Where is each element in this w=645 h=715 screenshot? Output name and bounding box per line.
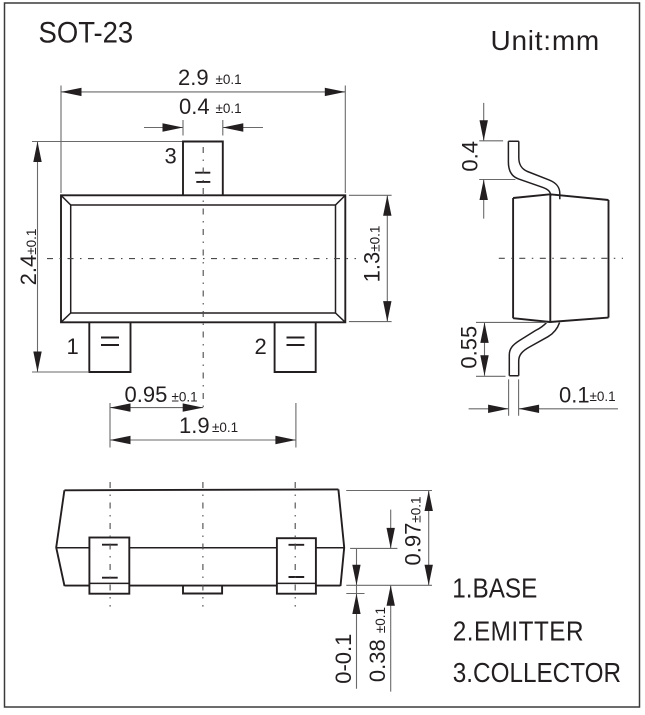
svg-text:0.4: 0.4 xyxy=(179,94,210,119)
svg-text:1: 1 xyxy=(67,334,79,359)
svg-text:3: 3 xyxy=(165,144,177,169)
svg-text:0.95: 0.95 xyxy=(125,382,168,407)
svg-text:1.9: 1.9 xyxy=(179,413,210,438)
svg-text:2.EMITTER: 2.EMITTER xyxy=(453,617,584,647)
svg-text:2: 2 xyxy=(255,334,267,359)
svg-text:0-0.1: 0-0.1 xyxy=(331,634,356,684)
svg-text:3.COLLECTOR: 3.COLLECTOR xyxy=(453,659,621,689)
svg-text:Unit:mm: Unit:mm xyxy=(491,25,600,56)
svg-text:SOT-23: SOT-23 xyxy=(39,17,134,50)
svg-text:±0.1: ±0.1 xyxy=(172,390,198,405)
svg-text:1.BASE: 1.BASE xyxy=(452,574,537,604)
svg-text:2.9: 2.9 xyxy=(178,65,209,90)
svg-text:±0.1: ±0.1 xyxy=(590,389,616,404)
svg-text:0.1: 0.1 xyxy=(559,383,590,408)
svg-text:±0.1: ±0.1 xyxy=(216,72,242,87)
svg-text:±0.1: ±0.1 xyxy=(216,101,242,116)
svg-text:0.4: 0.4 xyxy=(458,141,483,172)
svg-text:0.55: 0.55 xyxy=(457,326,482,369)
svg-text:±0.1: ±0.1 xyxy=(212,420,238,435)
